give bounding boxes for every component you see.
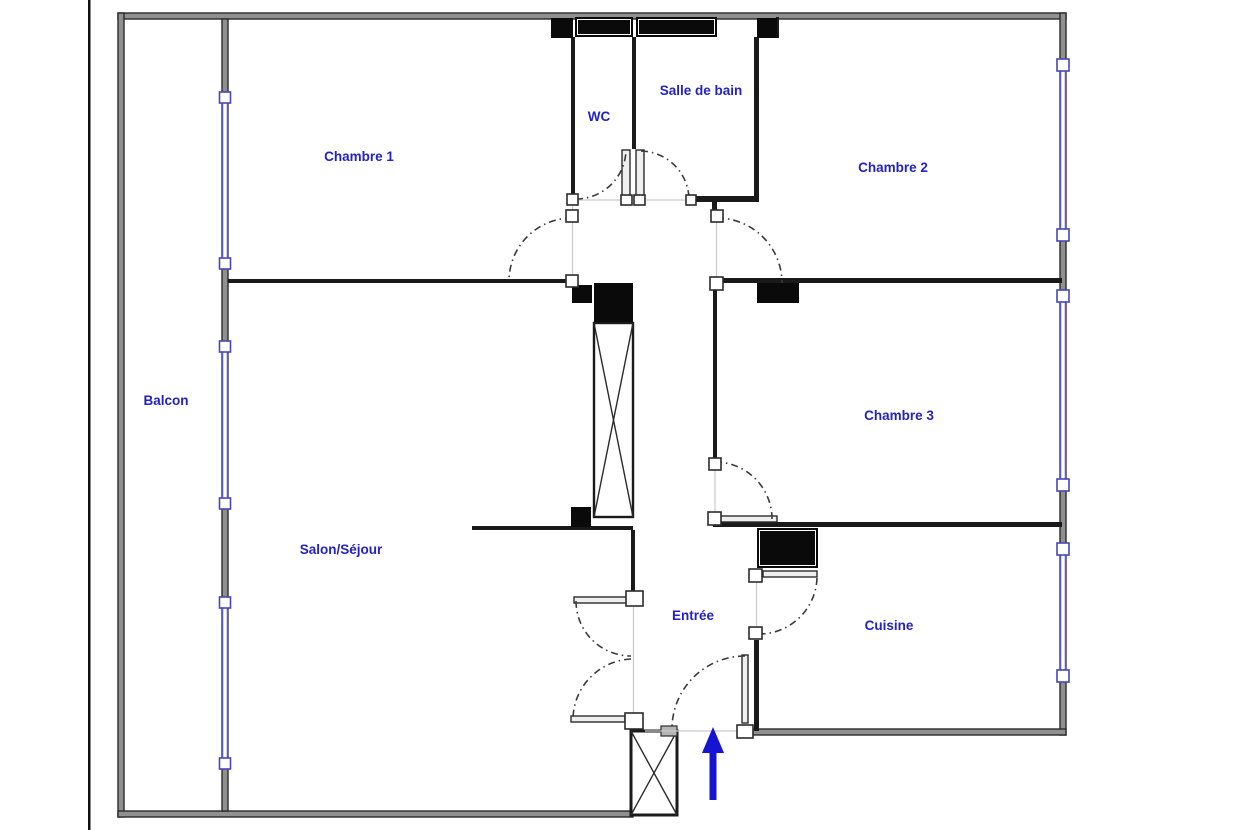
wall-sdb-right: [754, 37, 759, 198]
wall-wc-sdb-divider: [632, 37, 636, 149]
door-chambre2-top-square: [711, 210, 723, 222]
door-salon-hinge-bottom: [625, 713, 643, 729]
door-cuisine-hinge-square: [749, 569, 762, 582]
door-salon-leaf-bottom: [571, 716, 625, 722]
entrance-shaft-crossbox: [631, 726, 677, 815]
door-entrance-swing-arc: [672, 656, 745, 727]
door-chambre1-bottom-square: [566, 275, 578, 287]
door-chambre2-swing-arc: [717, 218, 782, 283]
window-right-3: [1057, 543, 1069, 682]
door-salon-hinge-top: [626, 591, 643, 606]
door-chambre-3: [708, 458, 777, 525]
door-chambre3-swing-arc: [715, 462, 772, 519]
room-label-cuisine: Cuisine: [865, 618, 914, 633]
window-balcony-1: [220, 92, 231, 269]
duct-box-top-4: [757, 18, 777, 38]
window-right-2: [1057, 290, 1069, 491]
door-entrance-leaf: [742, 655, 748, 723]
wall-sdb-bottom: [692, 196, 759, 202]
wall-chambre1-salon: [228, 279, 567, 283]
door-cuisine: [749, 569, 817, 639]
door-wc-jamb-square: [567, 194, 578, 205]
room-label-entree: Entrée: [672, 608, 715, 623]
outer-wall-bottom-right: [748, 729, 1066, 735]
door-chambre1-top-square: [566, 210, 578, 222]
black-fixtures: [551, 17, 818, 568]
door-chambre3-hinge-square: [708, 512, 721, 525]
room-label-balcon: Balcon: [143, 393, 188, 408]
door-cuisine-swing-arc: [757, 578, 817, 634]
wall-salon-partition: [472, 526, 633, 530]
shaft-side-box-bottom: [571, 507, 591, 527]
door-salon-swing-arc-top: [576, 601, 631, 656]
window-right-1: [1057, 59, 1069, 241]
cuisine-appliance-box: [757, 528, 818, 568]
door-sdb-hinge-square: [634, 195, 645, 205]
outer-wall-left: [118, 13, 124, 817]
door-chambre1-swing-arc: [509, 218, 572, 281]
door-salon-double: [571, 591, 643, 729]
wall-chambre3-left: [713, 283, 717, 461]
door-wc-hinge-square: [621, 195, 632, 205]
window-balcony-3: [220, 597, 231, 769]
page-left-rule: [88, 0, 91, 830]
door-entrance-hinge-square: [737, 725, 753, 738]
room-label-wc: WC: [588, 109, 611, 124]
wall-chambre3-bottom: [713, 522, 1062, 527]
door-salle-de-bain: [634, 150, 696, 205]
wall-entree-left: [631, 530, 635, 592]
wall-wc-left: [571, 37, 575, 197]
floor-plan-drawing: Chambre 1 WC Salle de bain Chambre 2 Bal…: [0, 0, 1255, 830]
wall-chambre2-bottom: [717, 278, 1062, 283]
door-chambre3-leaf: [718, 516, 777, 522]
room-label-salon-sejour: Salon/Séjour: [300, 542, 383, 557]
wall-cuisine-west: [754, 640, 759, 731]
chambre3-duct-box: [757, 283, 799, 303]
duct-shaft-crossbox: [594, 323, 633, 517]
door-wc-swing-arc: [576, 150, 626, 199]
door-salon-leaf-top: [574, 597, 627, 603]
door-chambre-1: [509, 210, 578, 287]
interior-walls: [228, 17, 1062, 731]
duct-box-top-1: [551, 18, 573, 38]
door-chambre2-bottom-square: [710, 277, 723, 290]
room-label-chambre-1: Chambre 1: [324, 149, 394, 164]
room-label-chambre-2: Chambre 2: [858, 160, 928, 175]
room-label-salle-de-bain: Salle de bain: [660, 83, 743, 98]
door-sdb-jamb-square: [686, 195, 696, 205]
door-entrance: [672, 655, 753, 738]
window-balcony-2: [220, 341, 231, 509]
outer-wall-bottom-left: [118, 811, 633, 817]
door-wc: [567, 150, 632, 205]
door-cuisine-jamb-square: [749, 627, 762, 639]
door-sdb-swing-arc: [641, 151, 689, 200]
door-chambre3-top-square: [709, 458, 721, 470]
entrance-arrow: [702, 727, 724, 800]
entrance-direction-arrow-shaft: [710, 752, 717, 800]
room-label-chambre-3: Chambre 3: [864, 408, 934, 423]
door-salon-swing-arc-bottom: [573, 659, 631, 718]
shaft-head-box: [594, 283, 633, 323]
door-cuisine-leaf: [763, 571, 817, 577]
doors: [509, 150, 817, 738]
floor-plan-page: Chambre 1 WC Salle de bain Chambre 2 Bal…: [0, 0, 1255, 830]
door-sdb-leaf: [636, 150, 644, 200]
